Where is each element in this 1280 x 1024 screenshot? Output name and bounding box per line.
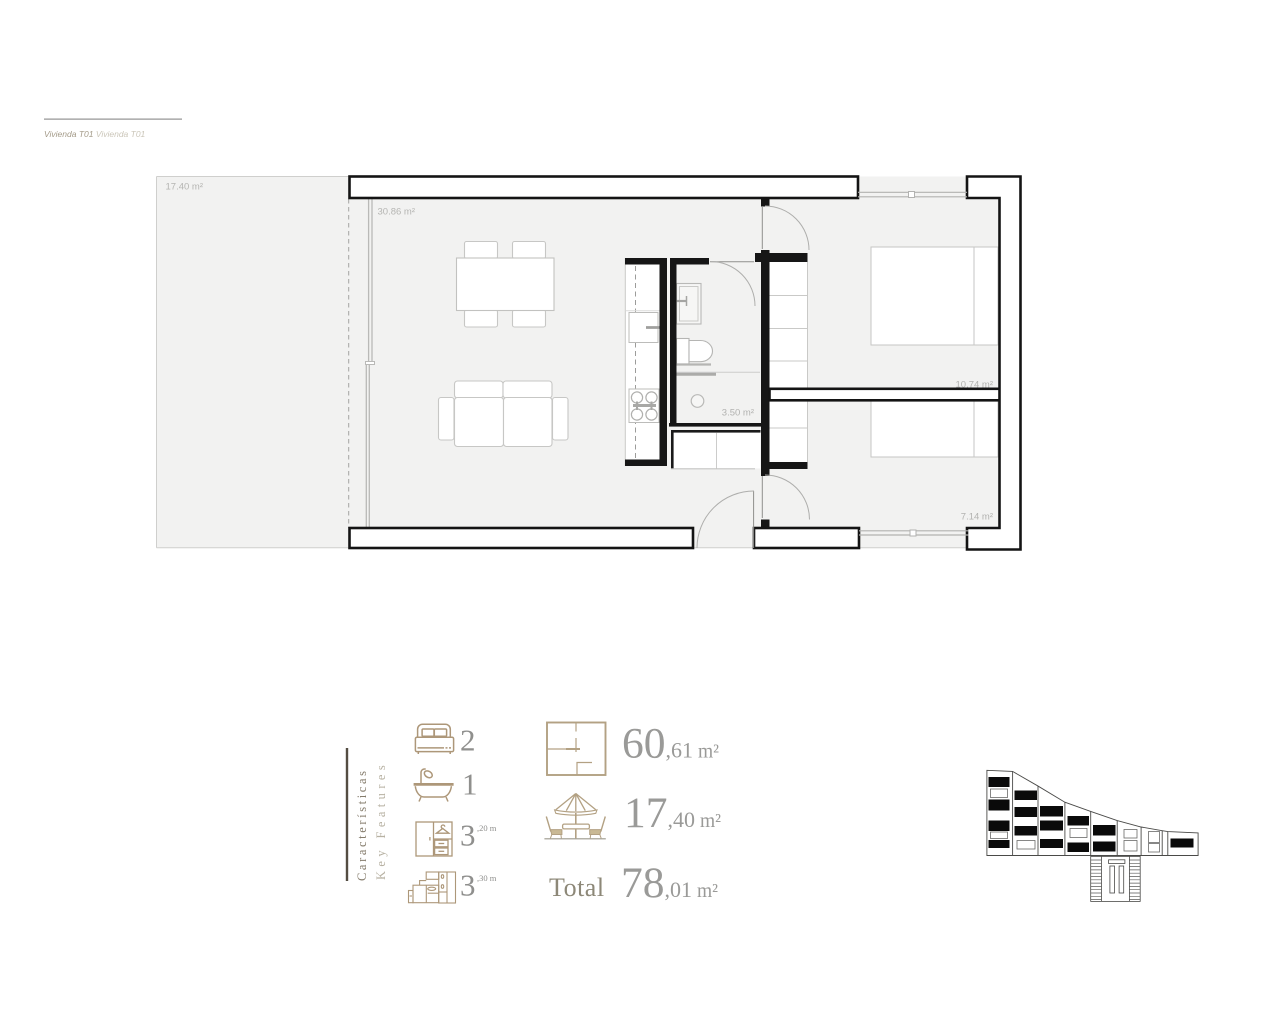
svg-text:3,20 m: 3,20 m — [460, 818, 497, 853]
svg-text:2: 2 — [460, 723, 476, 758]
svg-text:30.86 m²: 30.86 m² — [378, 207, 416, 218]
svg-text:17.40 m²: 17.40 m² — [166, 182, 204, 193]
svg-text:60,61m²: 60,61m² — [622, 720, 719, 768]
svg-text:7.14 m²: 7.14 m² — [961, 512, 993, 523]
svg-text:3,30 m: 3,30 m — [460, 868, 497, 903]
svg-text:Características: Características — [355, 768, 369, 881]
svg-text:3.50 m²: 3.50 m² — [722, 408, 754, 419]
svg-text:Vivienda T01 Vivienda T01: Vivienda T01 Vivienda T01 — [44, 129, 146, 139]
svg-text:17,40m²: 17,40m² — [624, 789, 721, 837]
svg-text:78,01m²: 78,01m² — [621, 859, 718, 907]
svg-text:Key Features: Key Features — [374, 761, 388, 880]
svg-text:1: 1 — [462, 767, 478, 802]
svg-text:Total: Total — [549, 873, 605, 902]
